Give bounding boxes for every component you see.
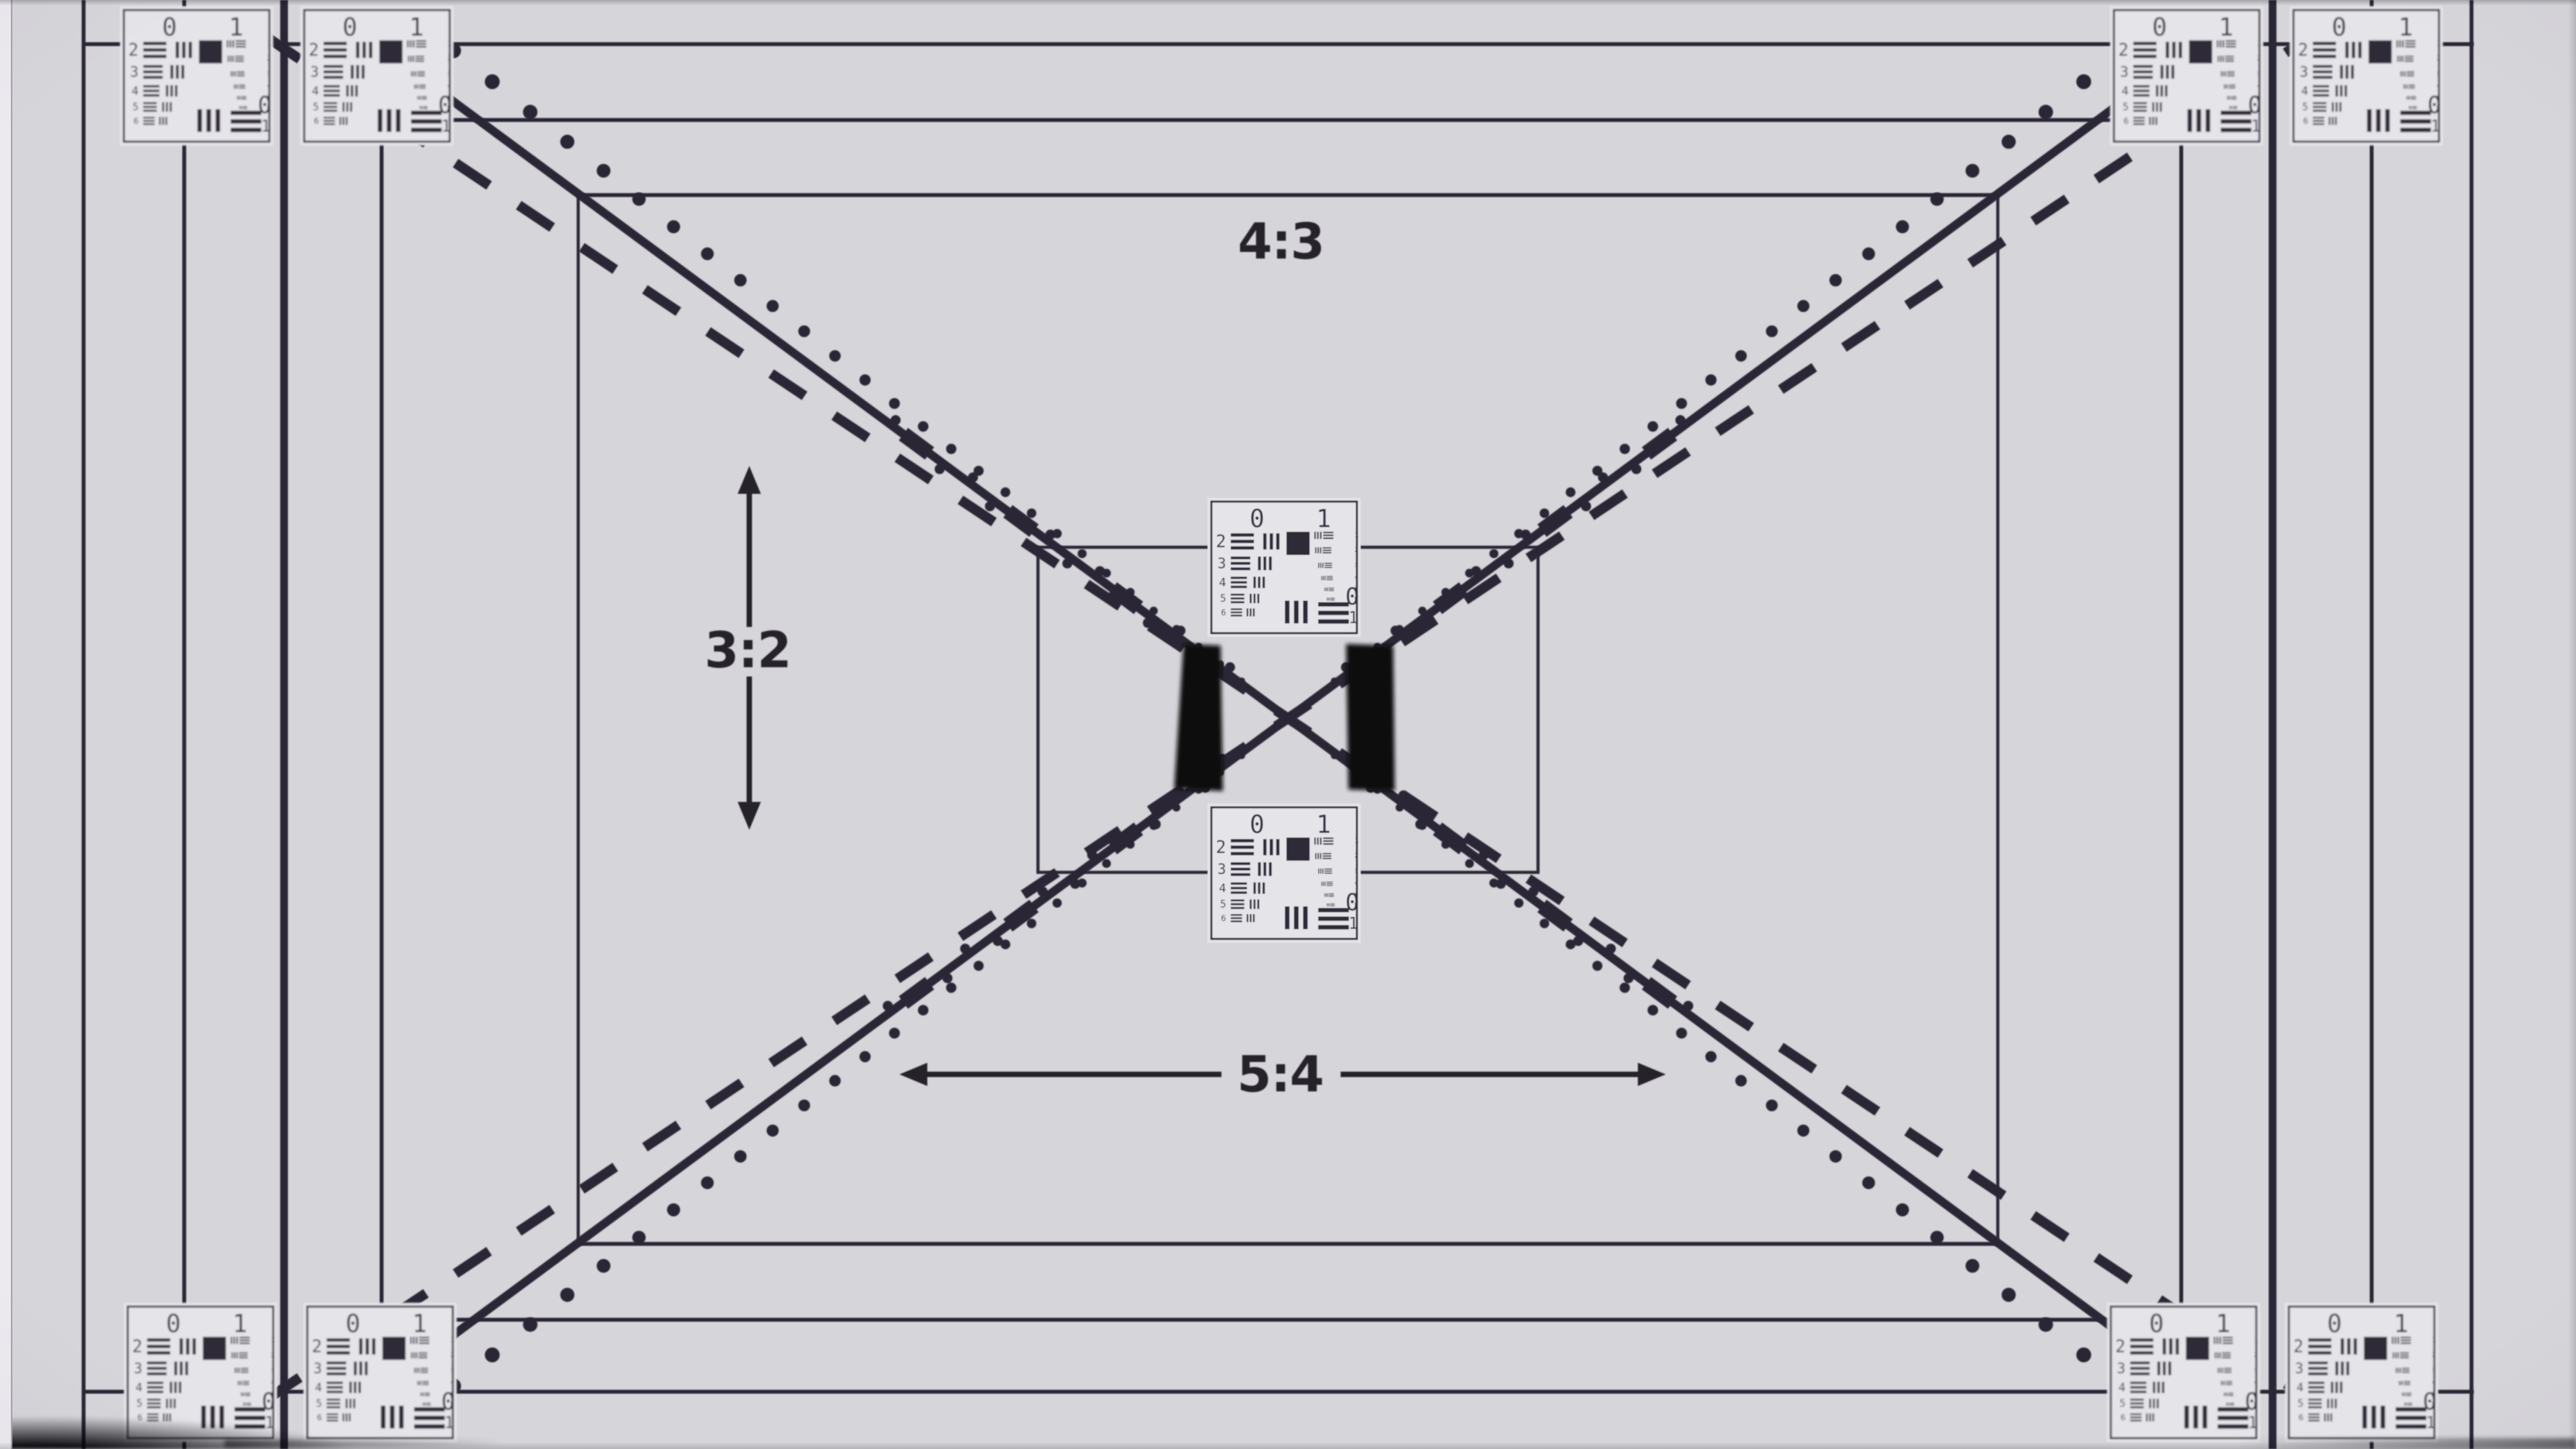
target-digit: 2 bbox=[450, 1351, 454, 1358]
target-digit: 4 bbox=[2257, 84, 2260, 89]
target-digit: 1 bbox=[271, 1337, 275, 1345]
aspect-ratio-label-5-4: 5:4 bbox=[1237, 1046, 1324, 1104]
target-digit: 6 bbox=[1221, 913, 1226, 923]
target-digit: 4 bbox=[267, 84, 270, 89]
target-digit: 2 bbox=[2298, 41, 2308, 60]
target-digit: 2 bbox=[2119, 41, 2129, 60]
target-digit: 3 bbox=[2120, 64, 2129, 80]
target-digit: 1 bbox=[1355, 838, 1358, 845]
target-digit: 1 bbox=[441, 117, 451, 135]
target-digit: 0 bbox=[162, 12, 176, 42]
target-digit: 1 bbox=[1355, 532, 1358, 540]
target-digit: 6 bbox=[2299, 1413, 2304, 1423]
target-digit: 1 bbox=[2215, 1309, 2230, 1338]
target-digit: 2 bbox=[2293, 1338, 2304, 1357]
target-digit: 2 bbox=[271, 1351, 275, 1358]
target-digit: 4 bbox=[315, 1381, 322, 1395]
target-digit: 2 bbox=[312, 1338, 322, 1357]
arrowhead-icon bbox=[1638, 1063, 1666, 1086]
target-digit: 2 bbox=[309, 41, 319, 60]
target-digit: 3 bbox=[134, 1361, 142, 1377]
target-digit: 4 bbox=[2297, 1381, 2304, 1395]
target-digit: 4 bbox=[2122, 84, 2129, 98]
target-digit: 1 bbox=[2437, 40, 2441, 48]
target-digit: 0 bbox=[258, 92, 272, 119]
target-digit: 2 bbox=[1216, 533, 1226, 552]
target-digit: 1 bbox=[228, 12, 243, 42]
target-digit: 3 bbox=[2437, 70, 2440, 77]
arrowhead-icon bbox=[738, 466, 761, 494]
target-digit: 3 bbox=[2300, 64, 2308, 80]
target-digit: 5 bbox=[2119, 1399, 2126, 1410]
target-digit: 3 bbox=[447, 70, 450, 77]
target-digit: 1 bbox=[1348, 608, 1358, 627]
bottom-left-inner-resolution-target: 012345612345601 bbox=[303, 1303, 457, 1442]
top-right-inner-resolution-target: 012345612345601 bbox=[2110, 6, 2263, 146]
target-digit: 1 bbox=[2398, 12, 2413, 42]
target-digit: 5 bbox=[2297, 1399, 2304, 1410]
target-digit: 0 bbox=[1345, 889, 1359, 916]
target-digit: 0 bbox=[1249, 810, 1264, 839]
target-digit: 6 bbox=[1221, 608, 1226, 618]
target-digit: 4 bbox=[2119, 1381, 2126, 1395]
target-digit: 3 bbox=[2117, 1361, 2126, 1377]
target-digit: 1 bbox=[267, 40, 271, 48]
arrowhead-icon bbox=[738, 802, 761, 830]
bottom-right-inner-resolution-target: 012345612345601 bbox=[2107, 1303, 2260, 1442]
target-digit: 0 bbox=[1345, 584, 1359, 611]
target-digit: 3 bbox=[267, 70, 270, 77]
target-digit: 1 bbox=[1316, 810, 1331, 839]
target-digit: 5 bbox=[313, 102, 319, 114]
target-digit: 2 bbox=[132, 1338, 142, 1357]
target-digit: 0 bbox=[262, 1389, 276, 1416]
target-digit: 4 bbox=[447, 84, 450, 89]
target-digit: 0 bbox=[2245, 1389, 2259, 1416]
target-digit: 4 bbox=[2254, 1380, 2257, 1386]
target-digit: 1 bbox=[2430, 117, 2441, 135]
aspect-ratio-label-3-2: 3:2 bbox=[704, 622, 791, 680]
target-digit: 0 bbox=[2152, 12, 2167, 42]
target-digit: 6 bbox=[314, 116, 319, 126]
test-chart-photo: 4:3 3:2 5:4 0123456123456010123456123456… bbox=[0, 0, 2576, 1449]
target-digit: 4 bbox=[1355, 881, 1358, 886]
target-digit: 4 bbox=[312, 84, 319, 98]
target-digit: 2 bbox=[1355, 852, 1358, 859]
chart-graphics: 4:3 3:2 5:4 0123456123456010123456123456… bbox=[0, 0, 2576, 1449]
target-digit: 0 bbox=[342, 12, 357, 42]
arrowhead-icon bbox=[899, 1063, 927, 1086]
target-digit: 4 bbox=[1219, 576, 1226, 590]
target-digit: 5 bbox=[132, 102, 139, 114]
target-digit: 2 bbox=[1216, 838, 1226, 858]
target-digit: 0 bbox=[438, 92, 452, 119]
target-digit: 5 bbox=[316, 1399, 322, 1410]
target-digit: 2 bbox=[128, 41, 139, 60]
target-digit: 6 bbox=[2121, 1413, 2126, 1423]
target-digit: 1 bbox=[2432, 1337, 2436, 1345]
target-digit: 2 bbox=[2437, 55, 2441, 62]
target-digit: 3 bbox=[271, 1367, 274, 1373]
target-digit: 2 bbox=[2254, 1351, 2258, 1358]
target-digit: 4 bbox=[2432, 1380, 2435, 1386]
target-digit: 2 bbox=[447, 55, 451, 62]
target-digit: 3 bbox=[1355, 562, 1358, 568]
target-digit: 4 bbox=[271, 1380, 274, 1386]
target-digit: 2 bbox=[2257, 55, 2261, 62]
target-digit: 6 bbox=[2304, 116, 2308, 126]
center-upper-resolution-target: 012345612345601 bbox=[1207, 498, 1361, 637]
target-digit: 1 bbox=[409, 12, 423, 42]
target-digit: 1 bbox=[2218, 12, 2233, 42]
center-lower-resolution-target: 012345612345601 bbox=[1207, 803, 1361, 943]
target-digit: 6 bbox=[134, 116, 139, 126]
target-digit: 0 bbox=[345, 1309, 360, 1338]
target-digit: 4 bbox=[132, 84, 139, 98]
target-digit: 1 bbox=[2251, 117, 2261, 135]
target-digit: 3 bbox=[1218, 556, 1226, 572]
target-digit: 6 bbox=[2124, 116, 2129, 126]
top-left-inner-resolution-target: 012345612345601 bbox=[300, 6, 454, 146]
target-digit: 3 bbox=[2254, 1367, 2257, 1373]
target-digit: 1 bbox=[2248, 1413, 2258, 1432]
target-digit: 3 bbox=[313, 1361, 322, 1377]
target-digit: 6 bbox=[138, 1413, 142, 1423]
target-digit: 1 bbox=[450, 1337, 454, 1345]
target-digit: 3 bbox=[2257, 70, 2260, 77]
bottom-left-outer-resolution-target: 012345612345601 bbox=[124, 1303, 277, 1442]
target-digit: 5 bbox=[136, 1399, 142, 1410]
target-digit: 1 bbox=[1316, 504, 1331, 533]
target-digit: 3 bbox=[1355, 868, 1358, 874]
target-digit: 2 bbox=[2115, 1338, 2126, 1357]
target-digit: 6 bbox=[317, 1413, 322, 1423]
target-digit: 1 bbox=[2393, 1309, 2408, 1338]
target-digit: 0 bbox=[2248, 92, 2262, 119]
target-digit: 1 bbox=[2257, 40, 2261, 48]
target-digit: 5 bbox=[2302, 102, 2308, 114]
velvet-focus-bar bbox=[1174, 644, 1223, 791]
target-digit: 3 bbox=[2295, 1361, 2304, 1377]
target-digit: 1 bbox=[2254, 1337, 2258, 1345]
target-digit: 1 bbox=[261, 117, 271, 135]
target-digit: 4 bbox=[1219, 882, 1226, 896]
target-digit: 4 bbox=[2437, 84, 2440, 89]
target-digit: 5 bbox=[1220, 594, 1226, 605]
target-digit: 3 bbox=[1218, 862, 1226, 878]
target-digit: 0 bbox=[2327, 1309, 2341, 1338]
target-digit: 0 bbox=[2423, 1389, 2437, 1416]
target-digit: 3 bbox=[450, 1367, 454, 1373]
target-digit: 1 bbox=[412, 1309, 426, 1338]
target-digit: 3 bbox=[2432, 1367, 2435, 1373]
top-right-outer-resolution-target: 012345612345601 bbox=[2290, 6, 2443, 146]
velvet-focus-bar bbox=[1346, 644, 1395, 791]
target-digit: 0 bbox=[1249, 504, 1264, 533]
target-digit: 1 bbox=[265, 1413, 275, 1432]
target-digit: 4 bbox=[1355, 575, 1358, 581]
target-digit: 5 bbox=[2122, 102, 2129, 114]
target-digit: 0 bbox=[441, 1389, 455, 1416]
target-digit: 0 bbox=[2427, 92, 2441, 119]
target-digit: 1 bbox=[447, 40, 451, 48]
target-digit: 2 bbox=[2432, 1351, 2436, 1358]
target-digit: 0 bbox=[2149, 1309, 2163, 1338]
target-digit: 3 bbox=[310, 64, 319, 80]
target-digit: 4 bbox=[2301, 84, 2308, 98]
target-digit: 4 bbox=[450, 1380, 454, 1386]
target-digit: 1 bbox=[232, 1309, 247, 1338]
target-digit: 1 bbox=[2426, 1413, 2436, 1432]
target-digit: 1 bbox=[1348, 914, 1358, 933]
bottom-right-outer-resolution-target: 012345612345601 bbox=[2285, 1303, 2438, 1442]
top-left-outer-resolution-target: 012345612345601 bbox=[120, 6, 273, 146]
target-digit: 2 bbox=[1355, 546, 1358, 553]
target-digit: 2 bbox=[267, 55, 271, 62]
aspect-ratio-label-4-3: 4:3 bbox=[1238, 214, 1324, 271]
target-digit: 4 bbox=[135, 1381, 142, 1395]
target-digit: 0 bbox=[2331, 12, 2346, 42]
target-digit: 0 bbox=[166, 1309, 180, 1338]
target-digit: 1 bbox=[444, 1413, 454, 1432]
target-digit: 3 bbox=[130, 64, 139, 80]
target-digit: 5 bbox=[1220, 899, 1226, 911]
